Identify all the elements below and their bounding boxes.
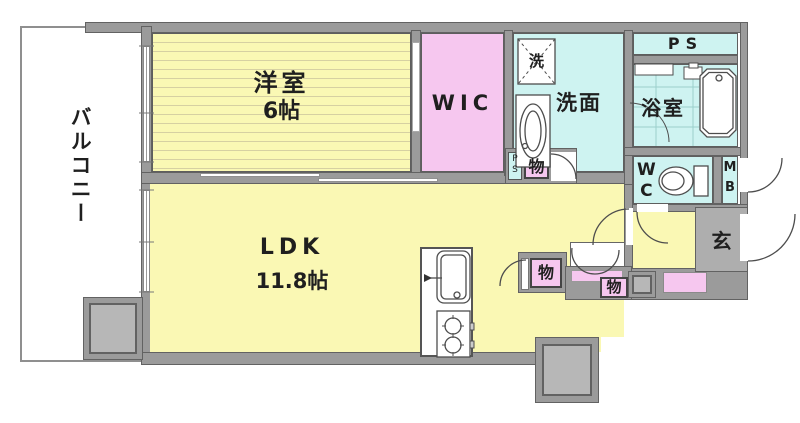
bedroom-name-label: 洋室 bbox=[152, 70, 411, 96]
balcony-label: バルコニー bbox=[68, 106, 91, 226]
washer-label: 洗 bbox=[518, 53, 555, 70]
washroom-label: 洗面 bbox=[556, 92, 602, 115]
storage-niche-label: 物 bbox=[524, 158, 549, 176]
storage-hall-label: 物 bbox=[600, 279, 628, 296]
genkan-label: 玄 bbox=[695, 230, 748, 252]
ldk-size-label: 11.8帖 bbox=[192, 270, 392, 293]
wc-label-w: W bbox=[637, 160, 656, 180]
ldk-name-label: LDK bbox=[192, 236, 392, 260]
ps-small-s: S bbox=[512, 165, 518, 175]
ps-label: PS bbox=[633, 35, 738, 53]
mb-label: M B bbox=[722, 158, 738, 198]
mb-label-m: M bbox=[724, 160, 737, 175]
wc-label: W C bbox=[637, 160, 656, 202]
wic-label: WIC bbox=[421, 92, 504, 115]
mb-label-b: B bbox=[725, 180, 735, 195]
wc-label-c: C bbox=[640, 181, 652, 201]
bath-label: 浴室 bbox=[641, 97, 685, 119]
fixtures-overlay bbox=[0, 0, 800, 423]
ps-small-p: P bbox=[512, 154, 517, 164]
bedroom-size-label: 6帖 bbox=[152, 100, 411, 124]
ps-small-label: P S bbox=[508, 154, 522, 176]
storage-mid-label: 物 bbox=[530, 264, 562, 282]
floor-plan: バルコニー 洋室 6帖 WIC 洗 洗面 PS 浴室 W C M B 玄 LDK… bbox=[0, 0, 800, 423]
